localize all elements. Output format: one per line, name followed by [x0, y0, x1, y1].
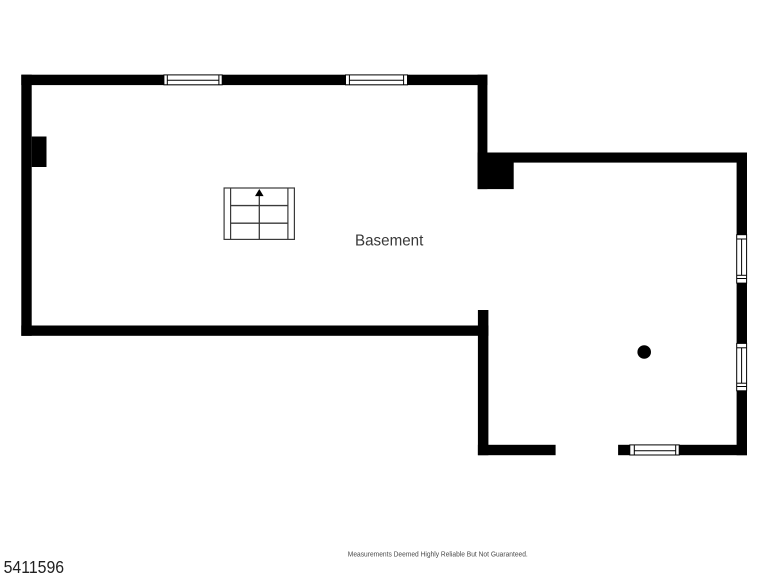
- svg-text:Basement: Basement: [355, 233, 424, 250]
- svg-text:5411596: 5411596: [4, 557, 65, 576]
- svg-text:Measurements Deemed Highly Rel: Measurements Deemed Highly Reliable But …: [348, 551, 528, 558]
